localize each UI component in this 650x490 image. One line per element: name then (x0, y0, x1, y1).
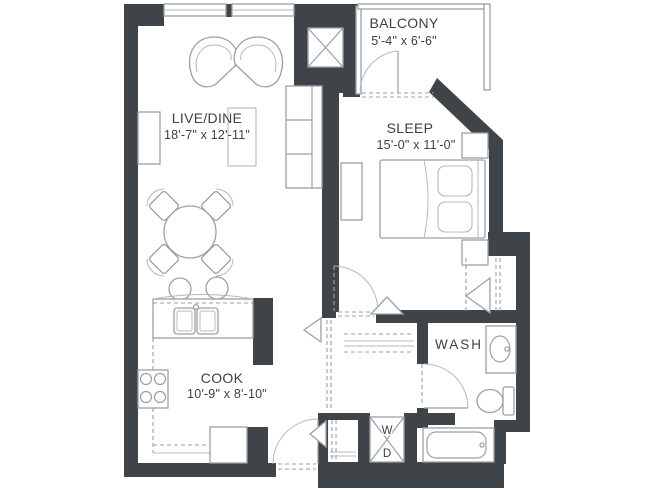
pantry-shelves (344, 334, 414, 352)
bedroom-door-swing (334, 266, 378, 311)
dresser (341, 163, 362, 220)
lounge-chair (190, 37, 238, 87)
live-dine-dims: 18'-7" x 12'-11" (164, 128, 250, 142)
nightstand (462, 133, 488, 158)
bifold-door (466, 278, 490, 313)
shaft-column (308, 28, 343, 67)
wall (326, 413, 362, 420)
toilet (477, 387, 514, 415)
cook-label: COOK (201, 370, 244, 386)
bifold-door (371, 297, 403, 314)
sleep-dims: 15'-0" x 11'-0" (377, 138, 456, 152)
hall-and-entry: W D (327, 320, 414, 462)
washer-dryer: W D (370, 417, 404, 462)
console-table (138, 112, 160, 164)
stove (138, 370, 168, 408)
lounge-chair (234, 37, 282, 87)
floor-plan: W D BALCONY 5'-4" x 6'-6" LIVE/DINE 18'-… (0, 0, 650, 490)
sleep-label: SLEEP (387, 120, 434, 136)
refrigerator (210, 427, 247, 463)
wall (322, 90, 339, 312)
wall (404, 413, 455, 425)
bathroom-sink (486, 326, 516, 373)
floor-plan-drawing: W D BALCONY 5'-4" x 6'-6" LIVE/DINE 18'-… (0, 0, 650, 490)
entry-door-swing (273, 419, 318, 464)
balcony-label: BALCONY (369, 15, 438, 31)
wall (494, 430, 506, 464)
wall (253, 298, 273, 365)
balcony-railing (356, 6, 361, 94)
bedroom-furniture (341, 133, 500, 313)
pillow (438, 166, 472, 196)
balcony-door-swing (360, 51, 398, 90)
wall (226, 4, 232, 17)
wall (358, 413, 370, 463)
dryer-label: D (383, 448, 391, 460)
balcony-dims: 5'-4" x 6'-6" (371, 34, 437, 48)
cook-dims: 10'-9" x 8'-10" (187, 387, 267, 401)
wall (124, 4, 164, 26)
wall (294, 4, 358, 28)
sofa (286, 86, 322, 188)
bed (380, 160, 485, 238)
entry-closet (330, 420, 356, 462)
wall (124, 4, 138, 477)
bifold-door (304, 318, 321, 342)
bathtub (423, 428, 494, 462)
washer-label: W (382, 425, 393, 437)
balcony-railing (484, 4, 490, 90)
wash-label: WASH (435, 337, 483, 352)
wall (322, 310, 336, 318)
wall (417, 318, 428, 364)
pillow (438, 202, 472, 232)
wall (516, 240, 530, 430)
wall (318, 462, 504, 488)
balcony-railing (358, 4, 486, 9)
wall (417, 310, 530, 323)
wall (247, 427, 268, 463)
live-dine-label: LIVE/DINE (172, 110, 242, 126)
bar-stool (169, 278, 191, 300)
wash-door-swing (424, 364, 468, 408)
wall (124, 463, 276, 477)
